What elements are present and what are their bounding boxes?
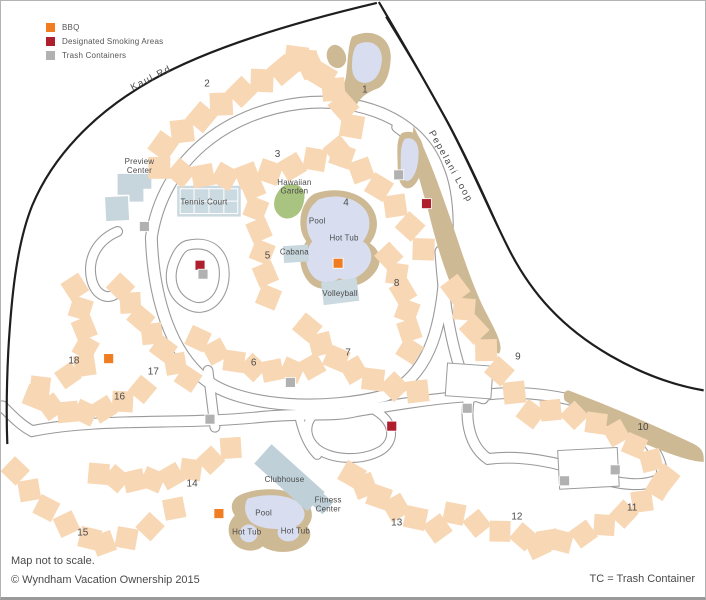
building-number-label: 13 bbox=[391, 517, 403, 528]
building-footprint bbox=[255, 283, 282, 310]
preview-center-label: Center bbox=[127, 166, 152, 175]
building-footprint bbox=[489, 521, 510, 542]
scale-note: Map not to scale. bbox=[11, 555, 200, 567]
building-footprint bbox=[339, 113, 365, 139]
legend-label: Trash Containers bbox=[62, 51, 126, 60]
building-number-label: 8 bbox=[394, 278, 400, 289]
legend-item-bbq: BBQ bbox=[46, 23, 163, 32]
bbq-marker bbox=[333, 258, 343, 268]
service-building bbox=[445, 363, 493, 399]
tennis-court-label: Tennis Court bbox=[181, 198, 229, 207]
smoking-area-marker bbox=[422, 199, 432, 209]
building-footprint bbox=[539, 399, 562, 422]
preview-center-annex bbox=[105, 196, 129, 221]
bbq-swatch-icon bbox=[46, 23, 55, 32]
legend: BBQ Designated Smoking Areas Trash Conta… bbox=[46, 23, 163, 65]
building-footprint bbox=[593, 514, 615, 536]
building-footprint bbox=[162, 496, 186, 520]
building-footprint bbox=[252, 260, 279, 287]
building-footprint bbox=[190, 163, 215, 188]
building-footprint bbox=[462, 509, 491, 538]
building-number-label: 4 bbox=[343, 198, 349, 209]
building-footprint bbox=[298, 352, 326, 380]
smoking-area-marker bbox=[387, 421, 397, 431]
trash-container-marker bbox=[462, 403, 472, 413]
building-footprint bbox=[114, 526, 138, 550]
building-footprint bbox=[405, 379, 429, 403]
trash-container-marker bbox=[198, 269, 208, 279]
legend-label: BBQ bbox=[62, 23, 80, 32]
building-footprint bbox=[302, 147, 327, 172]
tc-note: TC = Trash Container bbox=[590, 573, 695, 585]
bbq-marker bbox=[214, 509, 224, 519]
fitness-center-label: Fitness bbox=[315, 496, 342, 505]
building-footprint bbox=[383, 193, 408, 218]
road-name-label: Kaul Rd bbox=[128, 62, 173, 92]
clubhouse-label: Clubhouse bbox=[265, 475, 305, 484]
building-number-label: 11 bbox=[627, 503, 638, 514]
hot-tub-main-label: Hot Tub bbox=[329, 233, 359, 242]
pond-bank bbox=[327, 45, 346, 68]
trash-container-marker bbox=[205, 414, 215, 424]
building-number-label: 14 bbox=[187, 479, 199, 490]
building-number-label: 7 bbox=[345, 348, 351, 359]
building-number-label: 17 bbox=[148, 366, 160, 377]
trash-swatch-icon bbox=[46, 51, 55, 60]
building-number-label: 18 bbox=[68, 356, 80, 367]
trash-container-marker bbox=[560, 476, 570, 486]
building-number-label: 12 bbox=[511, 512, 523, 523]
smoking-swatch-icon bbox=[46, 37, 55, 46]
hawaiian-garden-label: Hawaiian bbox=[277, 178, 311, 187]
resort-map-svg: 123456789101112131415161718PreviewCenter… bbox=[1, 1, 705, 597]
building-footprint bbox=[536, 528, 560, 552]
trash-container-marker bbox=[285, 377, 295, 387]
hot-tub-lower-left-label: Hot Tub bbox=[232, 527, 262, 536]
fitness-center-label: Center bbox=[316, 505, 341, 514]
legend-label: Designated Smoking Areas bbox=[62, 37, 163, 46]
cabana-label: Cabana bbox=[280, 247, 309, 256]
trash-container-marker bbox=[394, 170, 404, 180]
legend-item-smoking: Designated Smoking Areas bbox=[46, 37, 163, 46]
smoking-area-marker bbox=[195, 260, 205, 270]
pool-lower-label: Pool bbox=[255, 509, 272, 518]
hawaiian-garden-label: Garden bbox=[281, 187, 309, 196]
bbq-marker bbox=[104, 354, 114, 364]
building-footprint bbox=[17, 478, 41, 502]
building-number-label: 10 bbox=[638, 422, 650, 433]
building-number-label: 6 bbox=[251, 358, 257, 369]
pool-main-label: Pool bbox=[309, 217, 326, 226]
building-number-label: 3 bbox=[275, 149, 281, 160]
building-footprint bbox=[53, 510, 81, 538]
trash-container-marker bbox=[610, 465, 620, 475]
building-footprint bbox=[249, 238, 276, 265]
building-footprint bbox=[412, 238, 435, 261]
building-footprint bbox=[475, 339, 497, 361]
building-footprint bbox=[135, 512, 164, 541]
building-number-label: 15 bbox=[77, 527, 89, 538]
building-number-label: 1 bbox=[362, 84, 368, 95]
building-number-label: 9 bbox=[515, 352, 521, 363]
preview-center-label: Preview bbox=[125, 157, 155, 166]
building-number-label: 2 bbox=[204, 78, 210, 89]
hot-tub-lower-right-label: Hot Tub bbox=[281, 526, 311, 535]
legend-item-trash: Trash Containers bbox=[46, 51, 163, 60]
resort-map-page: BBQ Designated Smoking Areas Trash Conta… bbox=[0, 0, 706, 600]
footer-notes: Map not to scale. © Wyndham Vacation Own… bbox=[11, 555, 200, 586]
building-footprint bbox=[292, 48, 318, 74]
building-footprint bbox=[502, 381, 526, 405]
building-number-label: 16 bbox=[114, 391, 126, 402]
building-number-label: 5 bbox=[265, 250, 271, 261]
volleyball-label: Volleyball bbox=[322, 289, 358, 298]
trash-container-marker bbox=[139, 222, 149, 232]
building-footprint bbox=[29, 375, 51, 397]
copyright: © Wyndham Vacation Ownership 2015 bbox=[11, 574, 200, 586]
building-footprint bbox=[220, 437, 242, 459]
